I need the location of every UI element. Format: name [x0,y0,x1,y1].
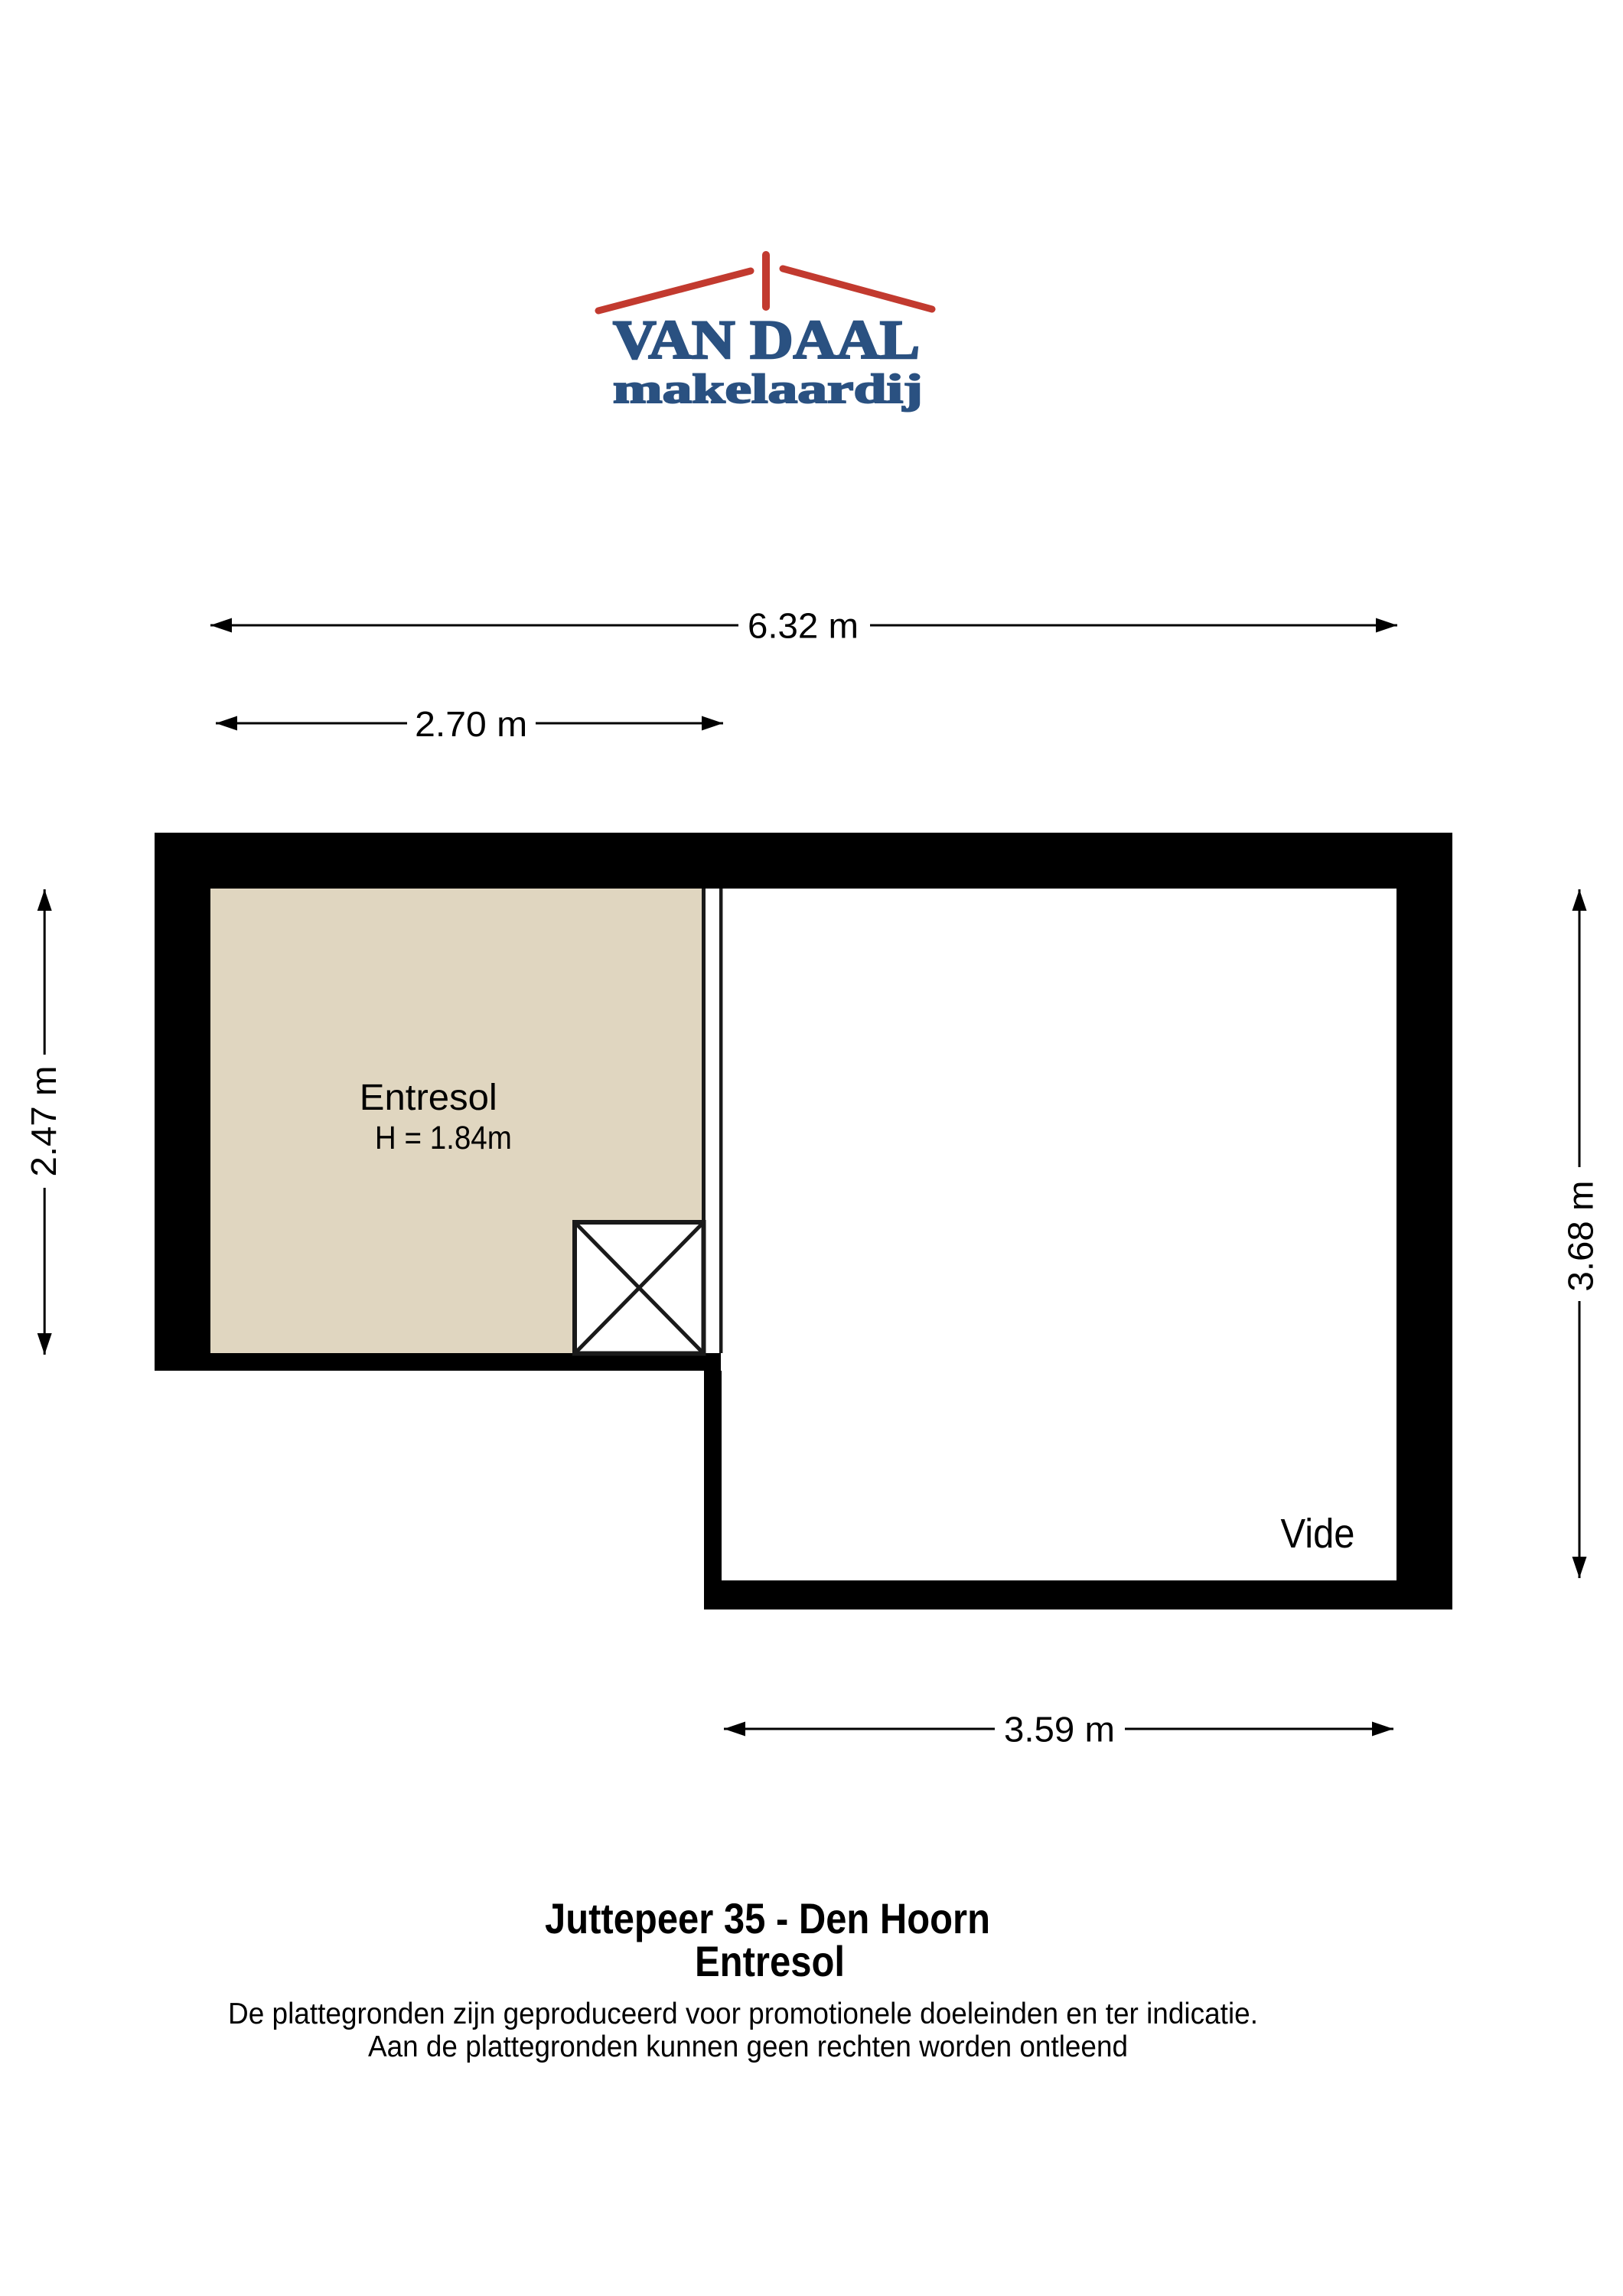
svg-text:2.47 m: 2.47 m [24,1066,64,1177]
svg-text:Entresol: Entresol [695,1937,845,1985]
svg-text:Juttepeer 35 - Den Hoorn: Juttepeer 35 - Den Hoorn [545,1894,990,1942]
svg-text:3.68 m: 3.68 m [1561,1181,1601,1292]
svg-text:De plattegronden zijn geproduc: De plattegronden zijn geproduceerd voor … [228,1998,1258,2030]
svg-text:2.70 m: 2.70 m [415,704,527,744]
svg-text:Entresol: Entresol [360,1078,497,1118]
svg-text:Vide: Vide [1281,1511,1355,1557]
svg-text:VAN DAAL: VAN DAAL [613,309,920,370]
svg-text:H = 1.84m: H = 1.84m [375,1120,512,1156]
svg-text:3.59 m: 3.59 m [1004,1710,1115,1750]
svg-text:makelaardij: makelaardij [613,366,923,412]
svg-text:Aan de plattegronden kunnen ge: Aan de plattegronden kunnen geen rechten… [368,2030,1128,2063]
svg-text:6.32 m: 6.32 m [748,606,859,646]
